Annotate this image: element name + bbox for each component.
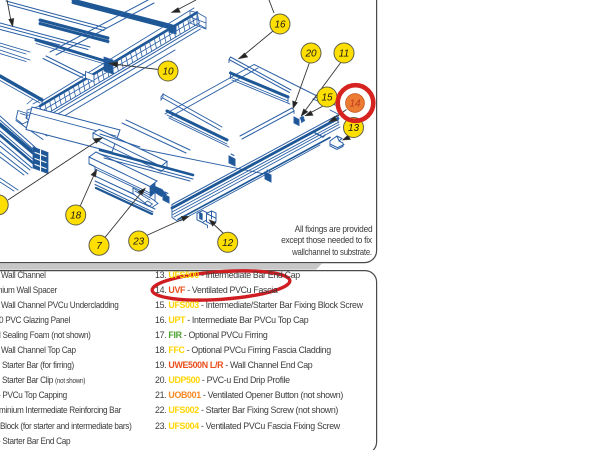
svg-text:10: 10 — [162, 67, 174, 78]
svg-text:7: 7 — [96, 241, 102, 252]
svg-text:18: 18 — [70, 211, 82, 222]
svg-text:14: 14 — [349, 99, 361, 110]
svg-text:12: 12 — [222, 238, 234, 249]
svg-text:20: 20 — [304, 49, 317, 60]
svg-text:13: 13 — [348, 123, 360, 134]
svg-text:15: 15 — [321, 93, 333, 104]
svg-text:16: 16 — [274, 20, 286, 31]
svg-text:11: 11 — [339, 49, 349, 60]
svg-text:23: 23 — [132, 237, 145, 248]
